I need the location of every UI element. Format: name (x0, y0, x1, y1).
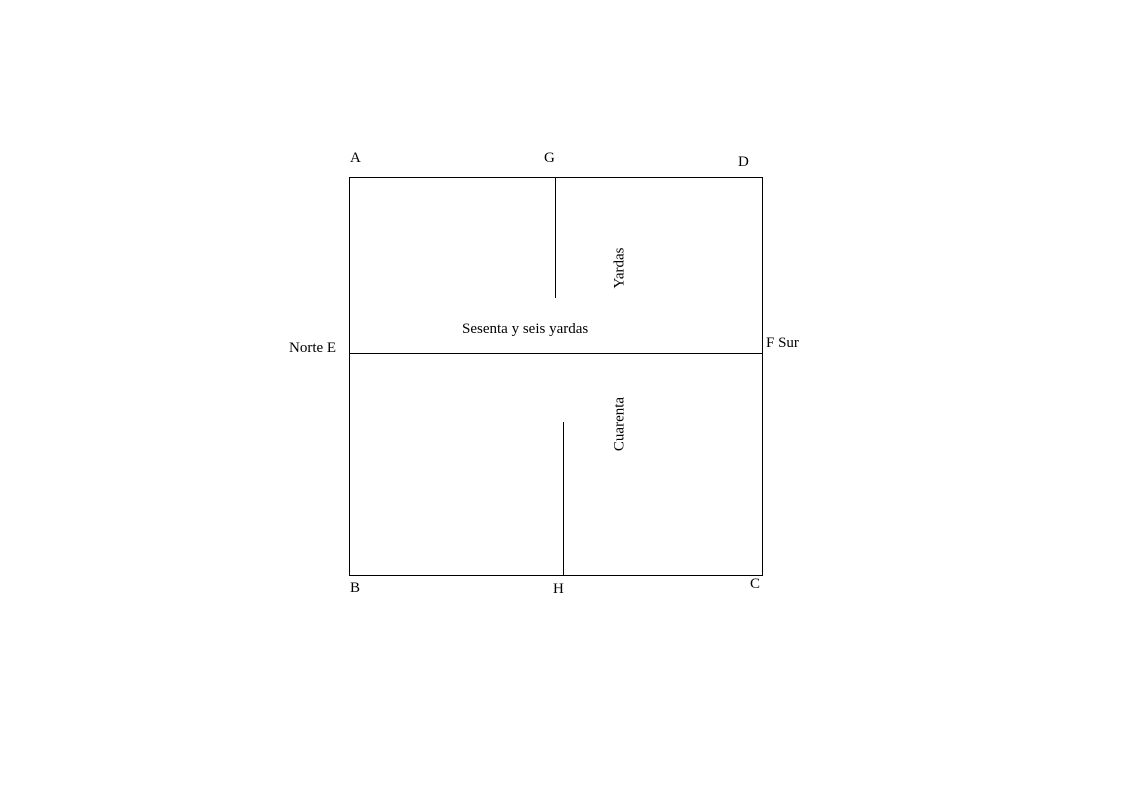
corner-label-d: D (738, 155, 749, 170)
vertical-segment-from-g (555, 178, 556, 298)
top-midpoint-label-g: G (544, 151, 555, 166)
vertical-segment-from-h (563, 422, 564, 576)
middle-distance-label: Sesenta y seis yardas (462, 322, 588, 337)
right-side-label-f-sur: F Sur (766, 336, 799, 351)
corner-label-b: B (350, 581, 360, 596)
field-rectangle-outline (349, 177, 763, 576)
upper-vertical-label-yardas: Yardas (613, 248, 628, 289)
corner-label-c: C (750, 577, 760, 592)
left-side-label-norte-e: Norte E (289, 341, 336, 356)
drawing-canvas: A G D B H C Norte E F Sur Sesenta y seis… (0, 0, 1122, 793)
lower-vertical-label-cuarenta: Cuarenta (613, 397, 628, 451)
corner-label-a: A (350, 151, 361, 166)
bottom-midpoint-label-h: H (553, 582, 564, 597)
middle-line-e-f (349, 353, 763, 354)
